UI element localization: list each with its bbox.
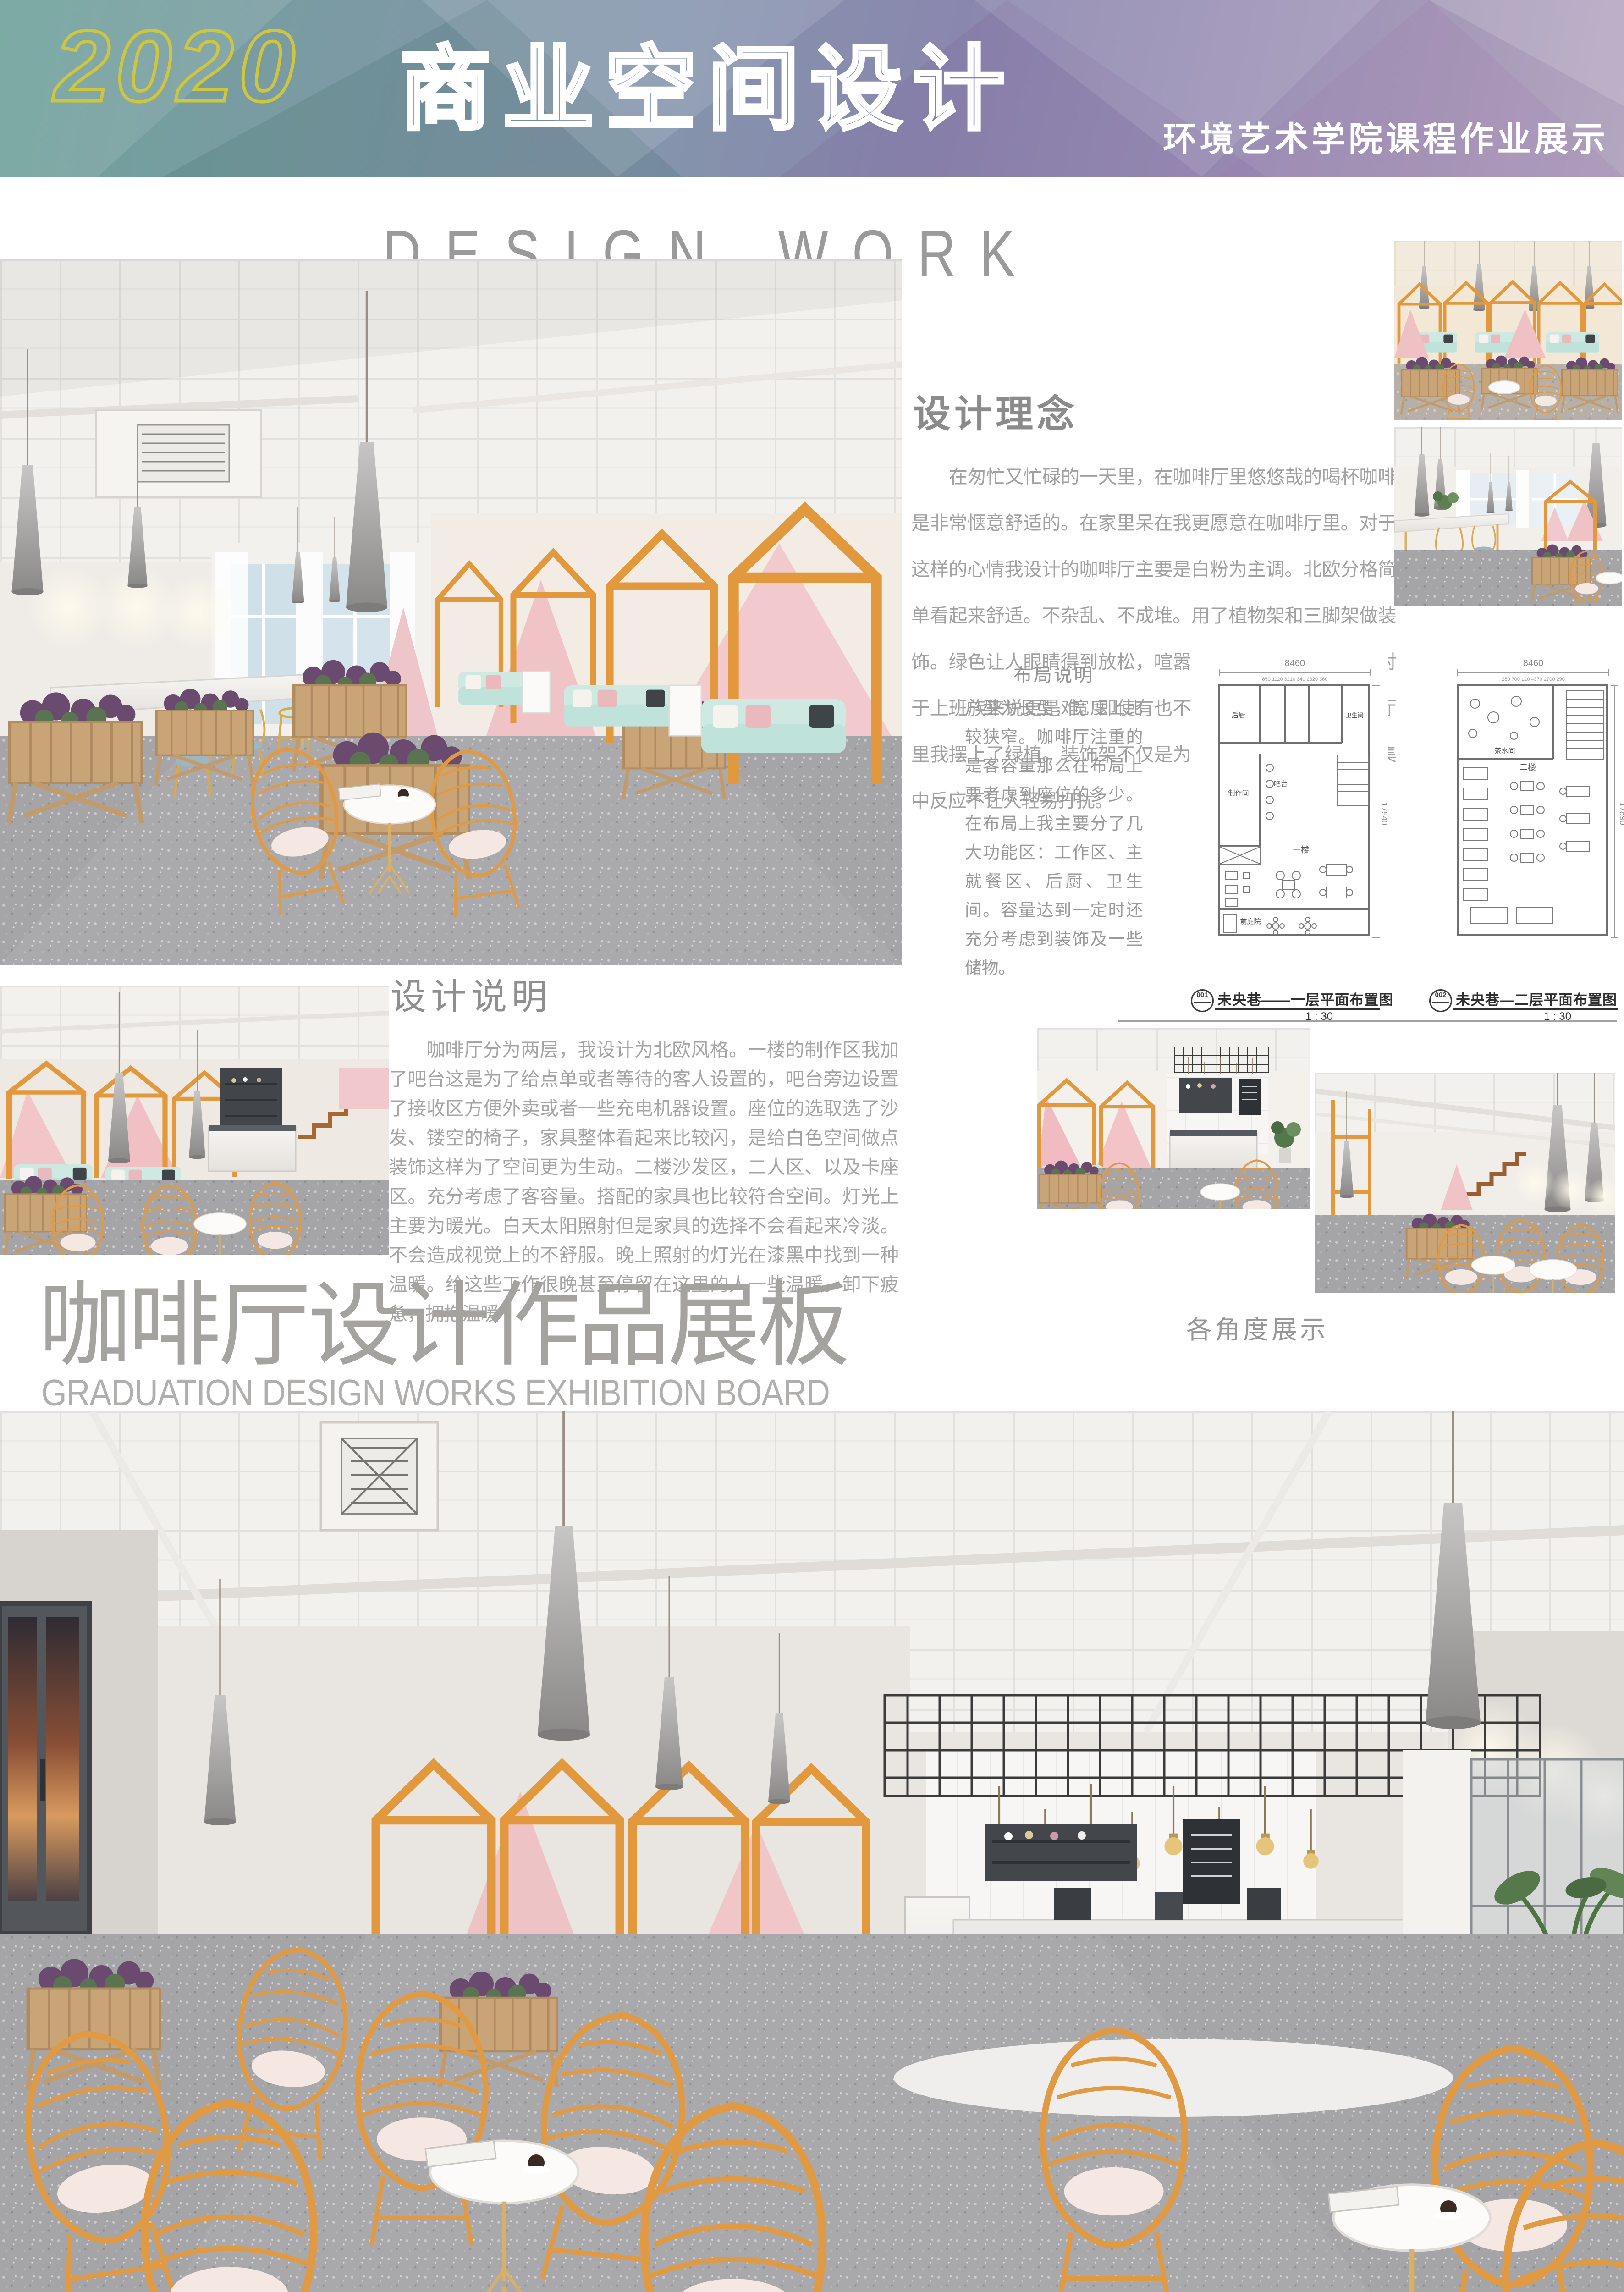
ac-vent: [321, 1422, 438, 1530]
description-title: 设计说明: [391, 968, 552, 1019]
svg-text:一楼: 一楼: [1293, 845, 1309, 854]
angle-render-image-1: [1037, 1028, 1310, 1209]
poster-main-title-en: GRADUATION DESIGN WORKS EXHIBITION BOARD: [41, 1372, 830, 1414]
poster-main-title: 咖啡厅设计作品展板: [39, 1251, 847, 1384]
svg-text:前庭院: 前庭院: [1240, 917, 1261, 926]
concept-title: 设计理念: [913, 383, 1078, 438]
svg-text:8460: 8460: [1523, 658, 1544, 668]
svg-text:茶水间: 茶水间: [1494, 747, 1515, 755]
layout-note-title: 布局说明: [965, 660, 1143, 687]
svg-text:后厨: 后厨: [1232, 711, 1245, 719]
bottom-render-image: [0, 1411, 1624, 2292]
side-render-image-1: [1394, 241, 1622, 420]
left-render-image: [0, 986, 389, 1255]
layout-note-body: 户型为长型，宽度上比较狭窄。咖啡厅注重的是客容量那么在布局上要考虑到座位的多少。…: [965, 694, 1143, 983]
header-year: 2020: [54, 8, 300, 124]
svg-text:制作间: 制作间: [1228, 789, 1249, 797]
hero-render-image: [0, 259, 902, 965]
caption-underline: [1453, 1008, 1618, 1010]
svg-text:280 700 120 4370 2700 29: 280 700 120 4370 2700 290: [1502, 677, 1565, 682]
svg-text:850 1120 3210 340 2320 36: 850 1120 3210 340 2320 360: [1262, 677, 1328, 682]
dark-door: [0, 1603, 89, 1934]
exhibition-board: 2020 商业空间设计 环境艺术学院课程作业展示 DESIGNWORK: [0, 0, 1624, 2292]
floor-plan-2: 8460 280 700 120 4370 2700 290 17890: [1429, 649, 1624, 979]
plan-caption-1: 001 未央巷——一层平面布置图 1 : 30: [1191, 988, 1388, 1020]
layout-note-block: 布局说明 户型为长型，宽度上比较狭窄。咖啡厅注重的是客容量那么在布局上要考虑到座…: [965, 660, 1143, 983]
floor-plan-1: 8460 850 1120 3210 340 2320 360 17540: [1191, 649, 1388, 979]
svg-text:17540: 17540: [1380, 802, 1388, 825]
plan-caption-text: 未央巷—二层平面布置图: [1456, 988, 1617, 1009]
header-banner: 2020 商业空间设计 环境艺术学院课程作业展示: [0, 0, 1624, 177]
section-divider-line: [1118, 1020, 1617, 1022]
plan-caption-text: 未央巷——一层平面布置图: [1217, 988, 1393, 1009]
angles-caption: 各角度展示: [1186, 1309, 1328, 1346]
side-render-image-2: [1394, 427, 1622, 606]
svg-text:8460: 8460: [1285, 658, 1305, 668]
plan-caption-2: 002 未央巷—二层平面布置图 1 : 30: [1429, 988, 1624, 1020]
plan-number-badge: 001: [1191, 989, 1214, 1012]
angle-render-image-2: [1315, 1073, 1615, 1293]
svg-text:二楼: 二楼: [1519, 763, 1536, 772]
svg-text:吧台: 吧台: [1274, 780, 1288, 788]
caption-underline: [1215, 1008, 1380, 1010]
ac-vent: [96, 410, 261, 497]
header-subtitle: 环境艺术学院课程作业展示: [1163, 112, 1608, 161]
header-title: 商业空间设计: [400, 15, 1016, 148]
plan-number-badge: 002: [1429, 989, 1452, 1012]
svg-text:卫生间: 卫生间: [1345, 712, 1363, 719]
svg-text:17890: 17890: [1618, 802, 1624, 825]
